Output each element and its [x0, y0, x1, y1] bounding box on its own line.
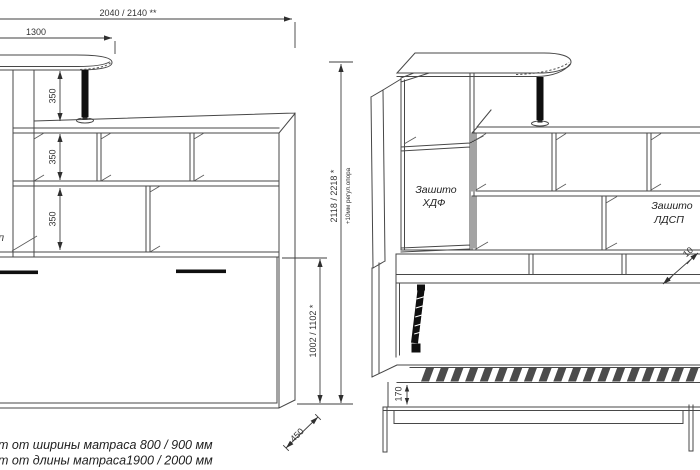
dim-total-width: 2040 / 2140 ** — [99, 8, 157, 18]
label-ldsp-line1: Зашито — [651, 200, 692, 212]
left-edge-text-fragment: п — [0, 233, 4, 244]
dim-bed-panel-height: 1002 / 1102 * — [308, 304, 318, 357]
label-hdf-line1: Зашито — [415, 184, 456, 196]
dim-depth: 450 — [288, 426, 306, 444]
left-shelving-lines — [0, 70, 295, 408]
bed-slats — [421, 368, 699, 382]
right-view-structure — [371, 53, 700, 452]
open-door-panel[interactable] — [371, 79, 401, 268]
dim-bed-frame-height: 170 — [394, 386, 404, 401]
dimension-labels: 2040 / 2140 ** 1300 350 350 350 2118 / 2… — [26, 8, 695, 444]
technical-drawing-page: 2040 / 2140 ** 1300 350 350 350 2118 / 2… — [0, 0, 700, 470]
label-hdf-line2: ХДФ — [422, 197, 446, 209]
footnotes: т от ширины матраса 800 / 900 мм т от дл… — [0, 438, 213, 468]
left-view-dimensions — [0, 16, 353, 450]
dim-shelf-gap-middle: 350 — [48, 149, 58, 164]
technical-drawing: 2040 / 2140 ** 1300 350 350 350 2118 / 2… — [0, 0, 700, 470]
gas-strut — [412, 285, 426, 353]
dim-total-height: 2118 / 2218 * — [329, 169, 339, 222]
right-tabletop — [397, 53, 571, 73]
footnote-mattress-length: т от длины матраса1900 / 2000 мм — [0, 454, 213, 468]
dim-tabletop-width: 1300 — [26, 27, 46, 37]
right-table-pole — [537, 77, 544, 120]
dim-height-note: +10мм регул.опора — [345, 167, 352, 224]
left-table-pole — [82, 70, 89, 117]
right-view-dimension-lines — [407, 253, 698, 405]
dim-shelf-gap-top: 350 — [48, 88, 58, 103]
left-view-structure — [0, 55, 295, 408]
left-tabletop — [0, 55, 112, 70]
footnote-mattress-width: т от ширины матраса 800 / 900 мм — [0, 438, 213, 452]
right-column-lines — [401, 57, 483, 252]
bed-handle-left[interactable] — [0, 271, 38, 275]
dim-shelf-gap-bottom: 350 — [48, 211, 58, 226]
bed-handle-right[interactable] — [176, 270, 226, 274]
left-depth-diagonals — [12, 133, 204, 252]
label-ldsp-line2: ЛДСП — [653, 214, 684, 226]
